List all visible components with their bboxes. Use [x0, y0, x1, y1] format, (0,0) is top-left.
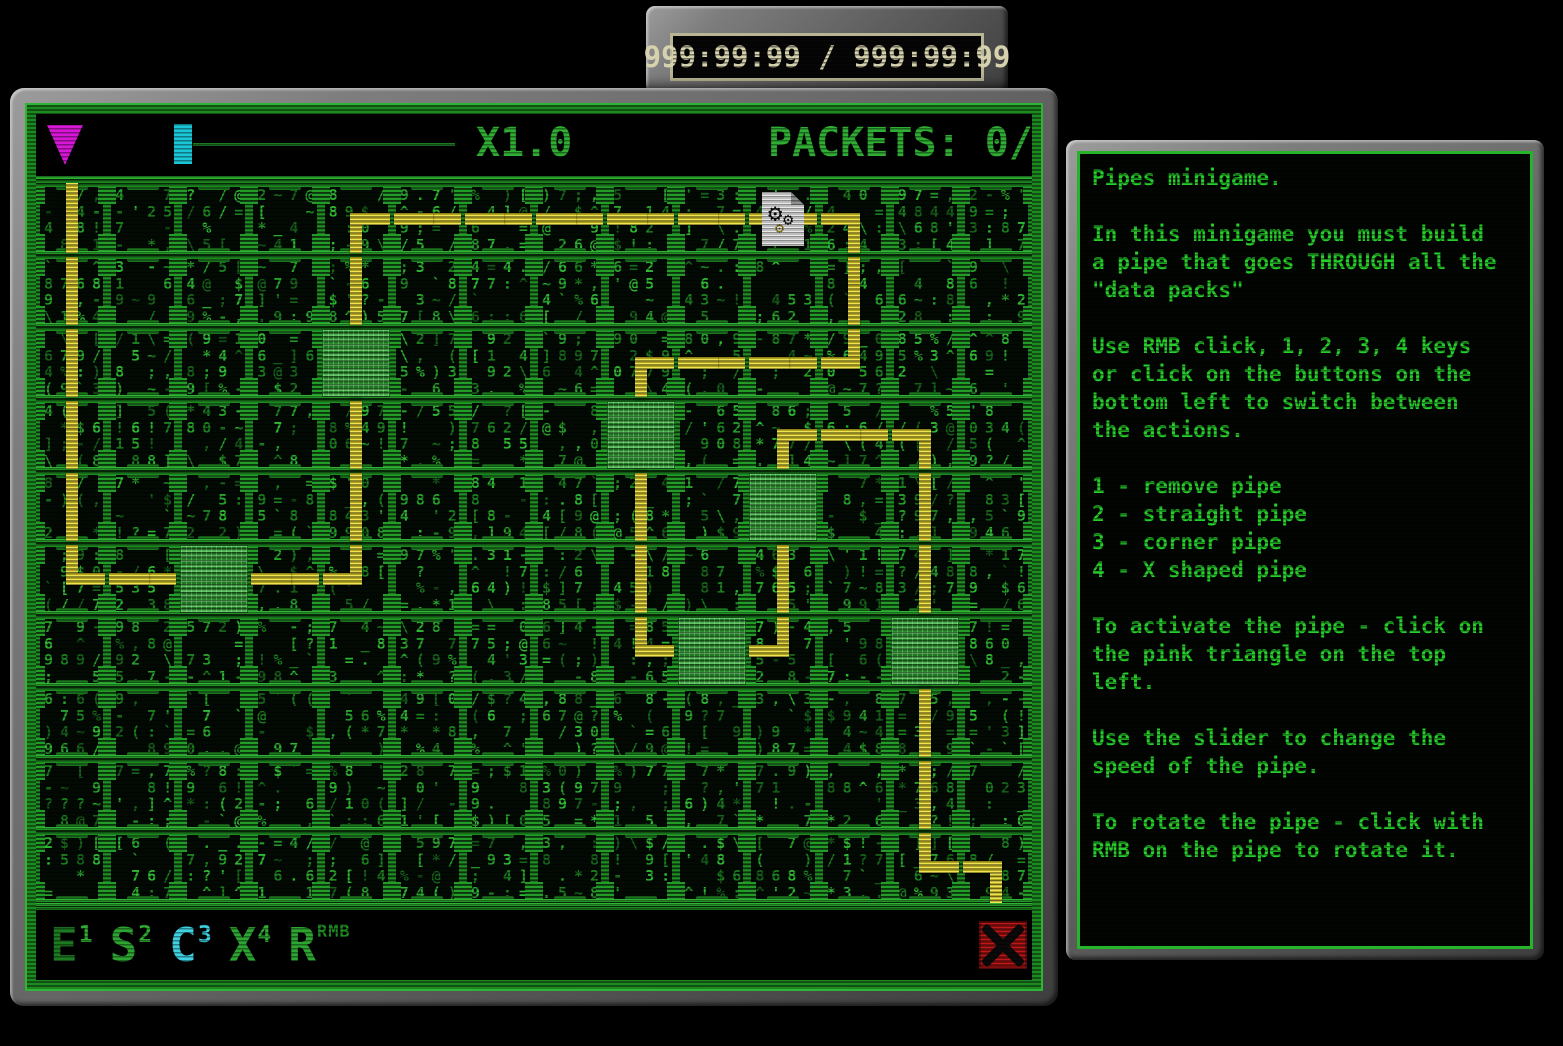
- grid-cell[interactable]: ,5'98[6(7:--: [819, 615, 890, 687]
- grid-cell[interactable]: 6]4-6~!=(;)-8: [534, 615, 605, 687]
- grid-cell[interactable]: /1\=5~/8;,)~-: [107, 327, 178, 399]
- grid-cell[interactable]: 572)=73;-^1-: [178, 615, 249, 687]
- activate-pipe-button[interactable]: [47, 125, 83, 165]
- pipe-straight[interactable]: [890, 471, 961, 543]
- pipe-straight[interactable]: [36, 255, 107, 327]
- tool-letter: X: [229, 925, 257, 965]
- grid-cell[interactable]: 5`((@-$97_: [249, 687, 320, 759]
- tool-X-shaped-pipe[interactable]: X4: [229, 925, 272, 965]
- grid-cell[interactable]: ;329`83~/7[8\: [392, 255, 463, 327]
- grid-cell[interactable]: ^^869!=6': [961, 327, 1032, 399]
- grid-cell[interactable]: 74~1_8=.3_^: [321, 615, 392, 687]
- pipe-straight[interactable]: [605, 183, 676, 255]
- grid-cell[interactable]: 2~7@[~*_4~41: [249, 183, 320, 255]
- data-pack: [891, 617, 959, 685]
- grid-cell[interactable]: ~7@79]'=.9;9: [249, 255, 320, 327]
- pipe-bar: [678, 357, 718, 369]
- grid-cell[interactable]: ^~.:6.43~!5: [676, 255, 747, 327]
- tool-hotkey: 1: [79, 925, 93, 945]
- grid-cell[interactable]: 97=,4844\68'3;[4: [890, 183, 961, 255]
- screen: 999:99:99 / 999:99:99 X1.0 PACKETS: 0/ /…: [0, 0, 1563, 1046]
- grid-cell[interactable]: /@;6]2[!47(8: [321, 831, 392, 903]
- tool-remove-pipe[interactable]: E1: [50, 925, 93, 965]
- pipe-straight[interactable]: [321, 399, 392, 471]
- grid-cell[interactable]: 3,\3`$)9*)87=: [747, 687, 818, 759]
- speed-slider-track[interactable]: [193, 143, 455, 146]
- grid-cell[interactable]: 49[04=:**8%4: [392, 687, 463, 759]
- grid-cell[interactable]: -=4/7~;6.611: [249, 831, 320, 903]
- pipe-straight[interactable]: [890, 759, 961, 831]
- pipe-straight[interactable]: [36, 183, 107, 255]
- data-pack: [749, 473, 817, 541]
- toolbar-separator: [36, 903, 1032, 910]
- pipe-bar: [777, 573, 789, 613]
- pipe-straight[interactable]: [747, 327, 818, 399]
- data-pack: [678, 617, 746, 685]
- grid-cell[interactable]: ._.7,92:?'[^]^: [178, 831, 249, 903]
- pipe-straight[interactable]: [36, 327, 107, 399]
- pipe-corner[interactable]: [747, 399, 818, 471]
- tool-hotkey: 2: [138, 925, 152, 945]
- grid-cell[interactable]: 47-'257--*,: [107, 183, 178, 255]
- pipe-bar: [777, 429, 817, 441]
- pipe-bar: [350, 285, 362, 325]
- grid-cell[interactable]: [7@()868%^'2~: [747, 831, 818, 903]
- grid-cell[interactable]: (8,_9?7[9!=: [676, 687, 747, 759]
- pipe-straight[interactable]: [605, 543, 676, 615]
- pipe-bar: [607, 213, 647, 225]
- pipe-corner[interactable]: [747, 615, 818, 687]
- grid-cell[interactable]: 982%,8@92\5,7-: [107, 615, 178, 687]
- grid-cell[interactable]: -/55!)7~;*,%: [392, 399, 463, 471]
- instructions-panel: Pipes minigame. In this minigame you mus…: [1066, 140, 1544, 960]
- grid-cell[interactable]: *43-80-~,/4\$7: [178, 399, 249, 471]
- grid-cell[interactable]: `[7`=60,,@: [178, 687, 249, 759]
- grid-cell[interactable]: =7,_93=;4]9-:=: [463, 831, 534, 903]
- grid-cell[interactable]: 4=4.77:^`6;;6: [463, 255, 534, 327]
- timer-window: 999:99:99 / 999:99:99: [646, 6, 1008, 94]
- pipe-straight[interactable]: [392, 183, 463, 255]
- grid-cell[interactable]: %-;[?!%_`98^: [249, 615, 320, 687]
- grid-cell[interactable]: 6=2'@5~94@: [605, 255, 676, 327]
- data-pack: [180, 545, 248, 613]
- close-button[interactable]: [979, 921, 1027, 969]
- grid-cell[interactable]: 597[*/%-@74(): [392, 831, 463, 903]
- pipe-corner[interactable]: [961, 831, 1032, 903]
- grid-cell[interactable]: $`=^.-;6%,: [249, 759, 320, 831]
- pipe-bar: [350, 213, 390, 225]
- pipe-bar: [821, 429, 861, 441]
- pipe-straight[interactable]: [107, 543, 178, 615]
- grid-cell[interactable]: 7/023:_;;0: [961, 759, 1032, 831]
- pipe-straight[interactable]: [463, 183, 534, 255]
- pipe-straight[interactable]: [819, 399, 890, 471]
- pipe-straight[interactable]: [321, 471, 392, 543]
- grid-cell[interactable]: ,=9=-85`8=(`: [249, 471, 320, 543]
- grid-cell[interactable]: :2\:/6$]785[;: [534, 543, 605, 615]
- grid-cell[interactable]: -65/'62908,(=: [676, 399, 747, 471]
- tool-rotate-pipe[interactable]: RRMB: [288, 925, 350, 965]
- pipe-corner[interactable]: [605, 327, 676, 399]
- grid-cell[interactable]: [6(`76/4;7: [107, 831, 178, 903]
- grid-cell[interactable]: '8034(5(^9?/: [961, 399, 1032, 471]
- pipe-straight[interactable]: [676, 327, 747, 399]
- grid-cell[interactable]: */5[4@$6_;79%-,: [178, 255, 249, 327]
- grid-cell[interactable]: %?8:96!*:(2-`@: [178, 759, 249, 831]
- pipe-grid[interactable]: /,-4-48!8147-'257--*,?/@/6/=%\5[2~7@[~*_…: [36, 183, 1032, 903]
- instructions-body: Pipes minigame. In this minigame you mus…: [1077, 151, 1533, 949]
- header-separator: [36, 176, 1032, 183]
- grid-cell[interactable]: -,8$9414~44$8: [819, 687, 890, 759]
- grid-cell[interactable]: 77,7;-,^8: [249, 399, 320, 471]
- data-document-icon: ⚙⚙⚙: [762, 192, 804, 246]
- pipe-corner[interactable]: [321, 183, 392, 255]
- pipe-straight[interactable]: [676, 183, 747, 255]
- tool-straight-pipe[interactable]: S2: [110, 925, 153, 965]
- tool-hotkey: 4: [257, 925, 271, 945]
- grid-cell[interactable]: \2]7\,(5%)3-6: [392, 327, 463, 399]
- grid-cell[interactable]: 85%/5%3^2\7]~: [890, 327, 961, 399]
- tool-letter: C: [169, 925, 197, 965]
- grid-cell[interactable]: %8'9)~/10(`;:6: [321, 759, 392, 831]
- pipe-straight[interactable]: [36, 471, 107, 543]
- data-pack: [607, 401, 675, 469]
- grid-cell[interactable]: 7*?,'6)4*,7`: [676, 759, 747, 831]
- pipe-bar: [350, 429, 362, 469]
- grid-cell[interactable]: 7*8,=-$_$4: [819, 471, 890, 543]
- speed-slider-handle[interactable]: [174, 124, 192, 164]
- speed-label: X1.0: [476, 120, 572, 166]
- pipe-bar: [821, 357, 861, 369]
- tool-hotkey: RMB: [317, 925, 351, 940]
- pipe-straight[interactable]: [747, 543, 818, 615]
- grid-cell[interactable]: 9\6!,*2;9: [961, 255, 1032, 327]
- grid-cell[interactable]: ,--5(!='3]`-`[: [961, 687, 1032, 759]
- grid-cell[interactable]: 3-~169~9/: [107, 255, 178, 327]
- grid-cell[interactable]: 0=6_]63@3$2: [249, 327, 320, 399]
- grid-cell[interactable]: ~68781,)\:: [676, 543, 747, 615]
- grid-cell[interactable]: =;$1989.$)[0: [463, 759, 534, 831]
- grid-cell[interactable]: ^'83[,5`9946: [961, 471, 1032, 543]
- pipe-bar: [251, 573, 291, 585]
- grid-cell[interactable]: \'1!)!=`7~8991: [819, 543, 890, 615]
- pipe-straight[interactable]: [36, 399, 107, 471]
- pipe-bar: [635, 501, 647, 541]
- grid-cell[interactable]: 1/7;`75\,)$9: [676, 471, 747, 543]
- pipe-bar: [66, 213, 78, 253]
- pipe-bar: [465, 213, 505, 225]
- grid-cell[interactable]: *9864'2_;-9: [392, 471, 463, 543]
- grid-cell[interactable]: 2870']/-1'[: [392, 759, 463, 831]
- tool-letter: S: [110, 925, 138, 965]
- pipe-corner[interactable]: [890, 399, 961, 471]
- pipe-corner[interactable]: [890, 831, 961, 903]
- grid-cell[interactable]: 92[1492\3,%: [463, 327, 534, 399]
- pipe-bar: [66, 357, 78, 397]
- pipe-corner[interactable]: [321, 543, 392, 615]
- pipe-bar: [892, 429, 932, 441]
- grid-cell[interactable]: .31-^!764)!\:: [463, 543, 534, 615]
- pipe-bar: [749, 357, 789, 369]
- grid-cell[interactable]: 8418-[8-,]94: [463, 471, 534, 543]
- pipe-bar: [919, 501, 931, 541]
- tool-letter: E: [50, 925, 78, 965]
- grid-cell[interactable]: /66*~9*,4`%6[/: [534, 255, 605, 327]
- pipe-bar: [394, 213, 434, 225]
- grid-cell[interactable]: 8^453;62_: [747, 255, 818, 327]
- grid-cell[interactable]: 6:6(75%)4~9966/: [36, 687, 107, 759]
- timer-text: 999:99:99 / 999:99:99: [644, 40, 1011, 74]
- grid-cell[interactable]: ==075;@4'3(.3/: [463, 615, 534, 687]
- grid-cell[interactable]: )\$/!9[-3:': [605, 831, 676, 903]
- grid-cell[interactable]: `56%,(*7): [321, 687, 392, 759]
- pipe-bar: [635, 645, 675, 657]
- pipe-bar: [919, 573, 931, 613]
- pipe-bar: [109, 573, 149, 585]
- pipe-corner[interactable]: [819, 327, 890, 399]
- pipe-straight[interactable]: [605, 471, 676, 543]
- grid-cell[interactable]: 7[-~9???~8@7: [36, 759, 107, 831]
- grid-cell[interactable]: 7.9)71!.-*7: [747, 759, 818, 831]
- pipe-bar: [66, 501, 78, 541]
- grid-cell[interactable]: `9;]89764^~6=: [534, 327, 605, 399]
- window-green-border: X1.0 PACKETS: 0/ /,-4-48!8147-'257--*,?/…: [25, 103, 1043, 991]
- pipe-straight[interactable]: [249, 543, 320, 615]
- grid-cell[interactable]: /?[762/855=*: [463, 399, 534, 471]
- grid-cell[interactable]: *178,`!9$6=/6: [961, 543, 1032, 615]
- pipe-bar: [66, 573, 106, 585]
- grid-cell[interactable]: ?/@/6/=%\5[: [178, 183, 249, 255]
- tool-letter: R: [288, 925, 316, 965]
- pipe-straight[interactable]: [534, 183, 605, 255]
- grid-cell[interactable]: 9,-7'2(:`_89: [107, 687, 178, 759]
- pipe-straight[interactable]: [890, 687, 961, 759]
- grid-cell[interactable]: (9=1*4^8;99[%-: [178, 327, 249, 399]
- grid-cell[interactable]: %0)3(97897-5=*: [534, 759, 605, 831]
- pipe-bar: [635, 573, 647, 613]
- pipe-bar: [848, 285, 860, 325]
- game-header: X1.0 PACKETS: 0/: [36, 114, 1032, 176]
- pipe-bar: [963, 861, 1003, 873]
- pipe-bar: [536, 213, 576, 225]
- grid-cell[interactable]: 3,:88.*2.5~8: [534, 831, 605, 903]
- grid-cell[interactable]: [`486~:828:: [890, 255, 961, 327]
- grid-cell[interactable]: 68-%(`=6\/9@: [605, 687, 676, 759]
- pipe-bar: [635, 357, 675, 369]
- grid-cell[interactable]: -8@$,,,07@: [534, 399, 605, 471]
- pipe-corner[interactable]: [36, 543, 107, 615]
- pipe-bar: [678, 213, 718, 225]
- grid-cell[interactable]: \28377^(9%:*?: [392, 615, 463, 687]
- grid-cell[interactable]: 2-%'9=;3:87]7: [961, 183, 1032, 255]
- pipe-straight[interactable]: [819, 255, 890, 327]
- grid-cell[interactable]: .$\'48$6^!%:: [676, 831, 747, 903]
- pipe-straight[interactable]: [890, 543, 961, 615]
- grid-cell[interactable]: 7!=860\8_,2-: [961, 615, 1032, 687]
- pipe-bar: [821, 213, 861, 225]
- pipe-bar: [350, 501, 362, 541]
- grid-cell[interactable]: ,,88^6'*26: [819, 759, 890, 831]
- grid-cell[interactable]: 79-6^989/;5: [36, 615, 107, 687]
- packets-counter: PACKETS: 0/: [768, 120, 1032, 166]
- pipe-corner[interactable]: [605, 615, 676, 687]
- pipe-bar: [323, 573, 363, 585]
- pipe-bar: [66, 285, 78, 325]
- grid-cell[interactable]: 7*~'$~`!?=7: [107, 471, 178, 543]
- pipe-corner[interactable]: [819, 183, 890, 255]
- tool-hotkey: 3: [198, 925, 212, 945]
- instructions-text: Pipes minigame. In this minigame you mus…: [1092, 164, 1518, 864]
- pipe-bar: [919, 789, 931, 829]
- grid-cell[interactable]: /$?4(6;,7%^': [463, 687, 534, 759]
- pipe-bar: [749, 645, 789, 657]
- gear-icon: ⚙: [783, 212, 793, 229]
- pipe-bar: [919, 861, 959, 873]
- grid-cell[interactable]: 7=,78!',]^-;;: [107, 759, 178, 831]
- grid-cell[interactable]: ]5(!6!715!88]: [107, 399, 178, 471]
- grid-cell[interactable]: 97%'?%-,=,*1: [392, 543, 463, 615]
- pipe-bar: [919, 717, 931, 757]
- data-pack: [322, 329, 390, 397]
- pipe-straight[interactable]: [321, 255, 392, 327]
- pipe-bar: [66, 429, 78, 469]
- pipes-game-window: X1.0 PACKETS: 0/ /,-4-48!8147-'257--*,?/…: [10, 88, 1058, 1006]
- grid-cell[interactable]: %)779;;,;15_: [605, 759, 676, 831]
- tool-corner-pipe[interactable]: C3: [169, 925, 212, 965]
- grid-cell[interactable]: ,-=/5:~7822): [178, 471, 249, 543]
- game-toolbar: E1S2C3X4RRMB: [36, 910, 1032, 980]
- grid-cell[interactable]: *$!-/1?77`_*3,.: [819, 831, 890, 903]
- grid-cell[interactable]: 2$)[:588*=_: [36, 831, 107, 903]
- grid-cell[interactable]: 47`:.8[4[9@[/8(: [534, 471, 605, 543]
- pink-triangle-icon: [47, 125, 83, 165]
- gear-icon: ⚙: [775, 221, 784, 236]
- grid-cell[interactable]: ,88_67@?/30)?: [534, 687, 605, 759]
- timer-display: 999:99:99 / 999:99:99: [670, 33, 984, 81]
